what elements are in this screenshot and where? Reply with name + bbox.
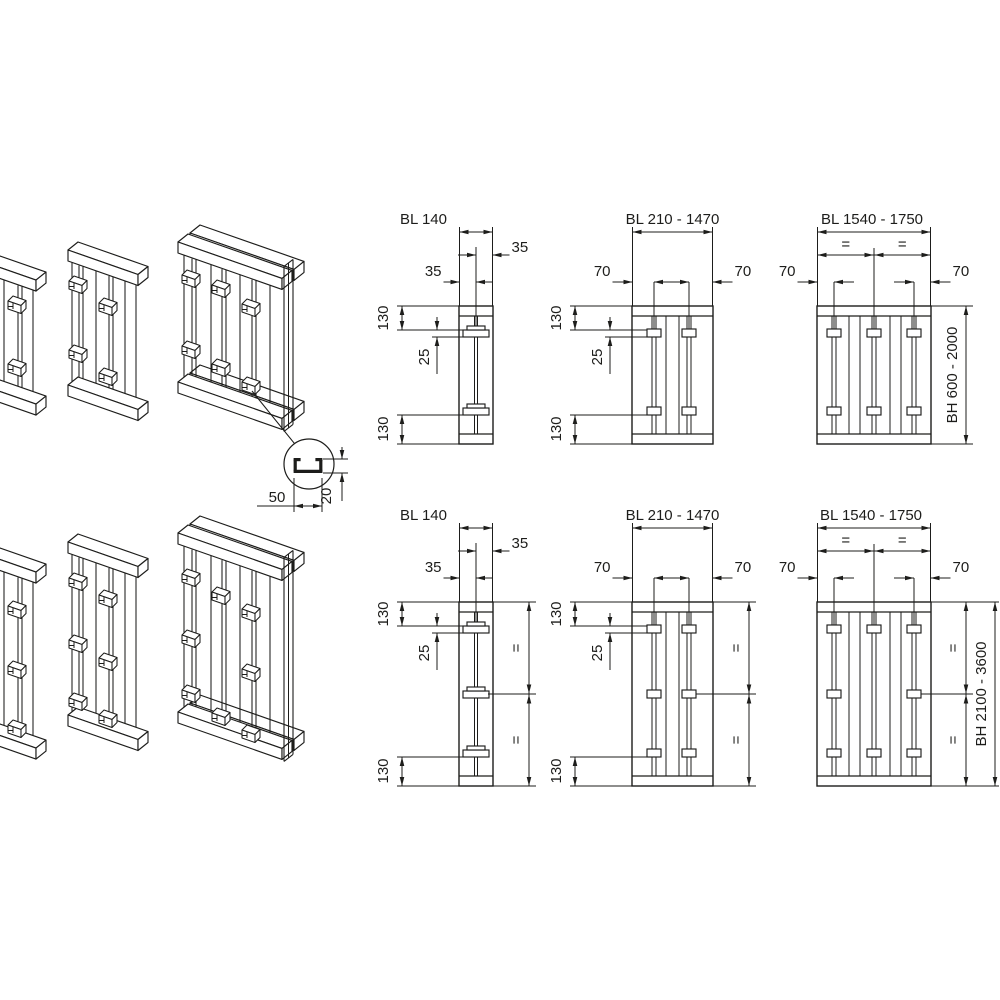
dimension-arrow [476,280,485,285]
dim-70-label: 70 [779,263,796,280]
iso-frame-top-small [0,256,46,415]
dimension-arrow [865,549,874,554]
dimension-arrow [713,280,722,285]
ortho-view-bottom-small: BL 140353513025130== [375,507,536,786]
clamp [867,625,881,633]
dim-130-label: 130 [375,305,392,330]
dimension-arrow [400,617,405,626]
dimension-arrow [460,526,469,531]
dimension-arrow [435,337,440,346]
clamp [647,690,661,698]
clamp [463,626,489,633]
dim-35-label: 35 [425,263,442,280]
dimension-arrow [400,306,405,315]
dimension-arrow [476,576,485,581]
dim-25-label: 25 [416,645,433,662]
dim-70-label: 70 [735,559,752,576]
dim-70-label: 70 [779,559,796,576]
bh-height-label: BH 2100 - 3600 [973,641,990,746]
dimension-arrow [680,576,689,581]
dimension-arrow [964,685,969,694]
dimension-arrow [993,602,998,611]
dimension-arrow [993,777,998,786]
dimension-arrow [435,321,440,330]
equal-mark-label: = [508,735,525,744]
dim-35-label: 35 [425,559,442,576]
dim-130-label: 130 [548,416,565,441]
dimension-arrow [922,230,931,235]
dimension-arrow [834,280,843,285]
ortho-view-bottom-large: BL 1540 - 1750==7070BH 2100 - 3600== [779,507,999,786]
clamp [827,625,841,633]
dim-70-label: 70 [594,559,611,576]
equal-mark-label: = [508,643,525,652]
dim-130-label: 130 [548,601,565,626]
dimension-arrow [400,757,405,766]
dimension-arrow [484,526,493,531]
dimension-arrow [680,280,689,285]
dim-130-label: 130 [375,601,392,626]
dimension-arrow [654,576,663,581]
equal-mark-label: = [898,236,907,253]
clamp [907,690,921,698]
clamp [682,329,696,337]
equal-mark-label: = [945,735,962,744]
dimension-arrow [527,695,532,704]
clamp [827,329,841,337]
clamp [827,690,841,698]
clamp [907,625,921,633]
bl-width-label: BL 140 [400,211,447,228]
dimension-arrow [467,253,476,258]
dimension-arrow [704,230,713,235]
clamp [467,746,485,750]
dimension-arrow [633,526,642,531]
clamp [467,326,485,330]
dimension-arrow [713,576,722,581]
equal-mark-label: = [945,643,962,652]
dim-130-label: 130 [548,758,565,783]
clamp [867,407,881,415]
ortho-view-bottom-medium: BL 210 - 1470707013025130== [548,507,756,786]
iso-frame-top-large [178,225,304,431]
clamp [682,407,696,415]
dim-35-label: 35 [512,239,529,256]
dimension-arrow [875,549,884,554]
dim-70-label: 70 [594,263,611,280]
dimension-arrow [467,549,476,554]
clamp [827,407,841,415]
clamp [647,625,661,633]
iso-frame-top-medium [68,242,148,421]
dimension-arrow [400,321,405,330]
dimension-arrow [875,253,884,258]
dim-70-label: 70 [735,263,752,280]
iso-frame-bottom-large [178,516,304,761]
dimension-arrow [527,602,532,611]
clamp [467,404,485,408]
dimension-arrow [747,685,752,694]
dimension-arrow [573,777,578,786]
bl-width-label: BL 210 - 1470 [626,211,720,228]
dim-25-label: 25 [589,645,606,662]
ortho-view-top-medium: BL 210 - 1470707013025130 [548,211,751,444]
clamp [907,407,921,415]
dimension-arrow [527,777,532,786]
dimension-arrow [493,549,502,554]
dimension-arrow [608,617,613,626]
dimension-arrow [484,230,493,235]
dimension-arrow [747,777,752,786]
dimension-arrow [527,685,532,694]
dimension-arrow [818,526,827,531]
dimension-arrow [633,230,642,235]
dimension-arrow [905,280,914,285]
dim-25-label: 25 [416,349,433,366]
iso-frame-bottom-small [0,548,46,759]
clamp [867,329,881,337]
clamp [867,749,881,757]
clamp [463,691,489,698]
clamp [907,749,921,757]
clamp [682,690,696,698]
dimension-arrow [573,306,578,315]
clamp [647,407,661,415]
dimension-arrow [624,280,633,285]
clamp [467,622,485,626]
iso-frame-bottom-medium [68,534,148,751]
dimension-arrow [573,435,578,444]
dimension-arrow [451,280,460,285]
dimension-arrow [818,230,827,235]
dimension-arrow [704,526,713,531]
dim-25-label: 25 [589,349,606,366]
dimension-arrow [400,602,405,611]
dim-35-label: 35 [512,535,529,552]
dimension-arrow [747,695,752,704]
dimension-arrow [865,253,874,258]
dimension-arrow [964,602,969,611]
ortho-view-top-large: BL 1540 - 1750==7070BH 600 - 2000 [779,211,973,444]
dimension-arrow [608,633,613,642]
equal-mark-label: = [841,236,850,253]
dimension-arrow [964,777,969,786]
clamp [463,330,489,337]
clamp [647,329,661,337]
dimension-arrow [573,757,578,766]
detail-height-label: 20 [318,488,335,505]
clamp [647,749,661,757]
dimension-arrow [809,576,818,581]
dimension-arrow [964,435,969,444]
dimension-arrow [818,253,827,258]
panel-outline [632,306,713,444]
dimension-arrow [493,253,502,258]
dim-70-label: 70 [953,559,970,576]
dim-70-label: 70 [953,263,970,280]
dimension-arrow [573,321,578,330]
clamp [682,749,696,757]
dimension-arrow [573,602,578,611]
dimension-arrow [922,253,931,258]
clamp [463,408,489,415]
dimension-arrow [922,526,931,531]
dimension-arrow [834,576,843,581]
dimension-arrow [964,695,969,704]
clamp [907,329,921,337]
dimension-arrow [460,230,469,235]
dimension-arrow [654,280,663,285]
dimension-arrow [922,549,931,554]
clamp [827,749,841,757]
clamp [682,625,696,633]
dimension-arrow [400,415,405,424]
detail-width-label: 50 [269,489,286,506]
equal-mark-label: = [841,532,850,549]
bl-width-label: BL 140 [400,507,447,524]
dimension-arrow [809,280,818,285]
dimension-arrow [400,777,405,786]
clamp [467,687,485,691]
dim-130-label: 130 [375,758,392,783]
dimension-arrow [451,576,460,581]
dim-130-label: 130 [548,305,565,330]
dimension-arrow [294,504,303,509]
bl-width-label: BL 1540 - 1750 [820,507,922,524]
dimension-arrow [340,450,345,459]
equal-mark-label: = [728,735,745,744]
dimension-arrow [624,576,633,581]
technical-drawing-page: BL 140353513025130BL 210 - 1470707013025… [0,0,1000,1000]
equal-mark-label: = [898,532,907,549]
dim-130-label: 130 [375,416,392,441]
bh-height-label: BH 600 - 2000 [944,327,961,424]
dimension-arrow [400,435,405,444]
dimension-arrow [340,473,345,482]
dimension-arrow [905,576,914,581]
bl-width-label: BL 1540 - 1750 [821,211,923,228]
ortho-view-top-small: BL 140353513025130 [375,211,528,444]
detail-circle [284,439,334,489]
clamp [463,750,489,757]
dimension-arrow [573,415,578,424]
dimension-arrow [573,617,578,626]
formwork-panel-diagram: BL 140353513025130BL 210 - 1470707013025… [0,0,1000,1000]
dimension-arrow [608,321,613,330]
dimension-arrow [435,633,440,642]
bl-width-label: BL 210 - 1470 [626,507,720,524]
dimension-arrow [964,306,969,315]
equal-mark-label: = [728,643,745,652]
dimension-arrow [931,280,940,285]
dimension-arrow [435,617,440,626]
dimension-arrow [931,576,940,581]
dimension-arrow [608,337,613,346]
dimension-arrow [747,602,752,611]
dimension-arrow [818,549,827,554]
